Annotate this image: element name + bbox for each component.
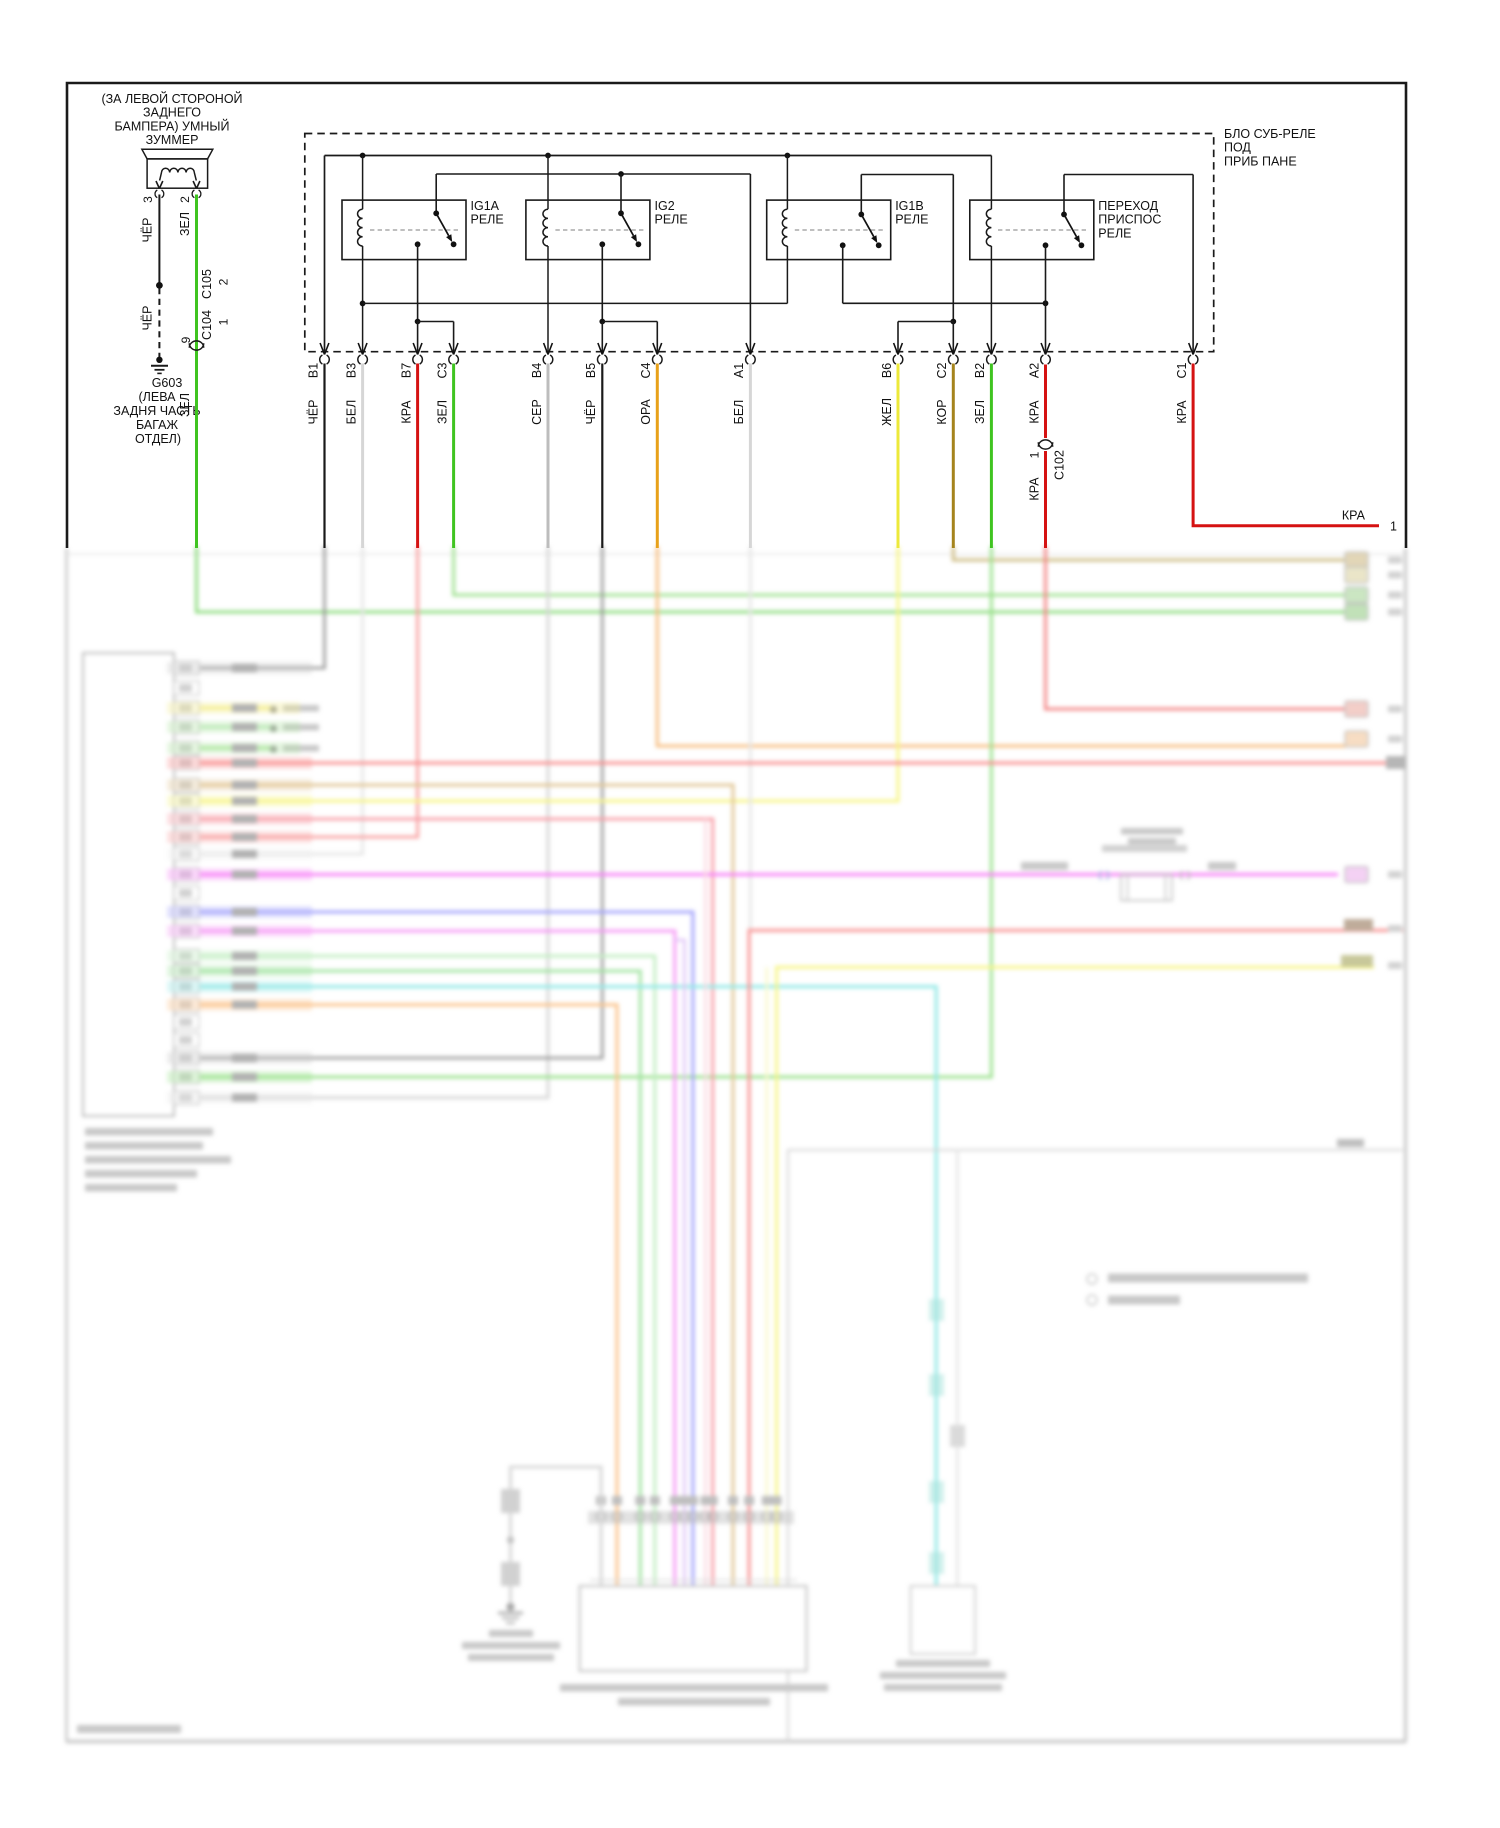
svg-text:(ЗА ЛЕВОЙ СТОРОНОЙ: (ЗА ЛЕВОЙ СТОРОНОЙ [101,91,242,106]
svg-text:КОР: КОР [935,399,949,424]
svg-text:IG2: IG2 [655,199,675,213]
svg-text:БЕЛ: БЕЛ [344,400,358,425]
svg-text:2: 2 [178,196,192,203]
svg-text:G603: G603 [152,376,183,390]
svg-text:ОРА: ОРА [639,399,653,425]
svg-text:3: 3 [141,196,155,203]
svg-text:2: 2 [217,278,231,285]
svg-text:1: 1 [1390,520,1397,534]
svg-text:C2: C2 [935,362,949,378]
svg-text:A1: A1 [732,363,746,378]
svg-text:9: 9 [179,336,193,343]
svg-text:ЗЕЛ: ЗЕЛ [178,212,192,236]
svg-text:ЗАДНЕГО: ЗАДНЕГО [143,106,201,120]
svg-text:C105: C105 [200,269,214,299]
svg-text:B3: B3 [344,363,358,378]
svg-text:ПЕРЕХОД: ПЕРЕХОД [1098,199,1158,213]
svg-text:ЖЕЛ: ЖЕЛ [880,398,894,426]
svg-text:(ЛЕВА: (ЛЕВА [139,390,177,404]
svg-text:БЕЛ: БЕЛ [732,400,746,425]
svg-text:ПРИСПОС: ПРИСПОС [1098,213,1161,227]
svg-text:B7: B7 [399,363,413,378]
svg-text:РЕЛЕ: РЕЛЕ [655,213,688,227]
svg-text:C3: C3 [435,362,449,378]
svg-text:ЧЁР: ЧЁР [141,217,155,242]
svg-text:B6: B6 [880,363,894,378]
svg-text:C4: C4 [639,362,653,378]
svg-text:ОТДЕЛ): ОТДЕЛ) [135,432,181,446]
svg-text:ЗЕЛ: ЗЕЛ [435,400,449,424]
svg-text:B5: B5 [584,363,598,378]
svg-text:B4: B4 [530,363,544,378]
svg-text:IG1A: IG1A [471,199,500,213]
svg-text:КРА: КРА [1175,400,1189,424]
svg-text:ЧЁР: ЧЁР [306,399,320,424]
svg-text:C1: C1 [1175,362,1189,378]
svg-text:КРА: КРА [1342,509,1366,523]
svg-text:1: 1 [217,318,231,325]
svg-text:СЕР: СЕР [530,399,544,425]
svg-text:РЕЛЕ: РЕЛЕ [895,213,928,227]
svg-text:ЧЁР: ЧЁР [141,305,155,330]
svg-text:БЛО СУБ-РЕЛЕ: БЛО СУБ-РЕЛЕ [1224,127,1316,141]
svg-text:B1: B1 [306,363,320,378]
svg-text:C102: C102 [1053,450,1067,480]
svg-text:БАГАЖ: БАГАЖ [136,418,179,432]
svg-text:РЕЛЕ: РЕЛЕ [471,213,504,227]
svg-text:ЗЕЛ: ЗЕЛ [973,400,987,424]
svg-text:1: 1 [1027,451,1041,458]
svg-text:БАМПЕРА) УМНЫЙ: БАМПЕРА) УМНЫЙ [115,118,230,133]
svg-text:КРА: КРА [399,400,413,424]
svg-text:ЗЕЛ: ЗЕЛ [178,393,192,417]
svg-text:ЗУММЕР: ЗУММЕР [146,133,199,147]
svg-text:РЕЛЕ: РЕЛЕ [1098,226,1131,240]
svg-text:КРА: КРА [1027,400,1041,424]
svg-text:B2: B2 [973,363,987,378]
svg-text:КРА: КРА [1027,477,1041,501]
svg-text:C104: C104 [200,310,214,340]
svg-text:ПРИБ ПАНЕ: ПРИБ ПАНЕ [1224,154,1297,168]
svg-text:ПОД: ПОД [1224,141,1251,155]
svg-text:ЧЁР: ЧЁР [584,399,598,424]
svg-text:IG1B: IG1B [895,199,924,213]
svg-text:A2: A2 [1027,363,1041,378]
